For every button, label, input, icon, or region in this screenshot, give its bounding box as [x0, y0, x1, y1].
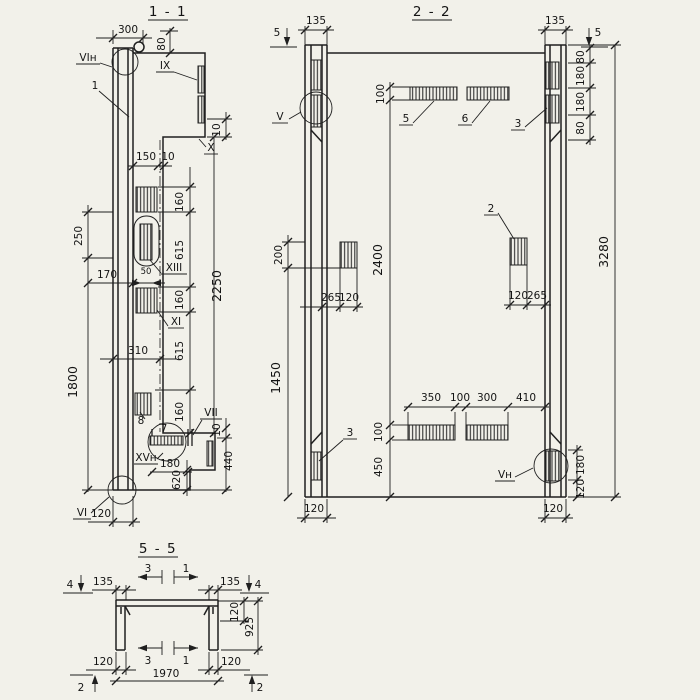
section-2-2-title: 2 - 2: [413, 4, 451, 20]
dim-135-right: 135: [545, 15, 565, 27]
label-part-5: 5: [403, 113, 410, 125]
dim-250: 250: [73, 226, 85, 246]
dim-100-bot: 100: [373, 422, 385, 442]
dim-160-3: 160: [174, 402, 186, 422]
dim-450: 450: [373, 457, 385, 477]
cut-3-bottom: 3: [145, 655, 152, 667]
dim-80: 80: [156, 37, 168, 50]
dim-10-bot: 10: [211, 423, 223, 436]
dim-170: 170: [97, 269, 117, 281]
section-5-5-title: 5 - 5: [139, 541, 177, 557]
dim-120-right: 120: [508, 290, 528, 302]
dim-135-right: 135: [220, 576, 240, 588]
dim-2250: 2250: [209, 270, 224, 302]
label-part-2: 2: [488, 203, 495, 215]
label-part-8: 8: [138, 415, 145, 427]
dim-10-top: 10: [211, 123, 223, 136]
dim-80-2: 80: [575, 121, 587, 134]
section-5-5-outline: [116, 600, 218, 650]
cut-2-left: 2: [78, 682, 85, 694]
dim-310: 310: [128, 345, 148, 357]
dim-80-1: 80: [575, 50, 587, 63]
dim-180-1: 180: [575, 66, 587, 86]
label-vi-n: VIн: [79, 52, 96, 64]
dim-180-2: 180: [575, 92, 587, 112]
label-ix: IX: [160, 60, 170, 72]
section-5-5: 5 - 5: [63, 541, 269, 694]
dim-100-top: 100: [375, 84, 387, 104]
cut-3-top: 3: [145, 563, 152, 575]
section-2-2-embeds: [311, 60, 559, 481]
section-1-1: 1 - 1: [65, 4, 235, 527]
dim-3280: 3280: [596, 236, 611, 268]
dim-135-left: 135: [306, 15, 326, 27]
dim-200: 200: [273, 245, 285, 265]
dim-300: 300: [118, 24, 138, 36]
dim-160-1: 160: [174, 192, 186, 212]
cut-1-top: 1: [183, 563, 190, 575]
dim-120-bottom-left: 120: [93, 656, 113, 668]
label-vii: VII: [204, 407, 217, 419]
dim-620: 620: [171, 470, 183, 490]
dim-925: 925: [244, 617, 256, 637]
label-part-1: 1: [92, 80, 99, 92]
label-part-3-top: 3: [515, 118, 522, 130]
dim-150: 150: [136, 151, 156, 163]
dim-135-left: 135: [93, 576, 113, 588]
dim-120-bottom-right: 120: [575, 479, 587, 499]
cut-5-left: 5: [274, 27, 281, 39]
dim-120-bottom-left-col: 120: [304, 503, 324, 515]
cut-5-right: 5: [595, 27, 602, 39]
label-xiii: XIII: [166, 262, 182, 274]
dim-180: 180: [160, 458, 180, 470]
dim-440: 440: [223, 451, 235, 471]
dim-10-web: 10: [161, 151, 174, 163]
dim-120: 120: [91, 508, 111, 520]
dim-1970: 1970: [153, 668, 180, 680]
dim-615-2: 615: [174, 341, 186, 361]
drawing-sheet: 1 - 1: [0, 0, 700, 700]
dim-50: 50: [141, 267, 152, 277]
dim-615-1: 615: [174, 240, 186, 260]
label-part-3-bottom: 3: [347, 427, 354, 439]
label-part-6: 6: [462, 113, 469, 125]
dim-1450: 1450: [268, 362, 283, 394]
dim-265-right: 265: [527, 290, 547, 302]
section-2-2-leaders: [272, 101, 547, 481]
dim-1800: 1800: [65, 366, 80, 398]
label-x: X: [207, 142, 214, 154]
drawing-canvas: 1 - 1: [0, 0, 700, 700]
dim-410: 410: [516, 392, 536, 404]
label-xi: XI: [171, 316, 181, 328]
label-part-7: 7: [161, 423, 168, 435]
dim-160-2: 160: [174, 290, 186, 310]
dim-300: 300: [477, 392, 497, 404]
section-2-2: 2 - 2: [268, 4, 621, 523]
label-vi: VI: [77, 507, 87, 519]
dim-180-bottom-right: 180: [575, 455, 587, 475]
label-xv-n: XVн: [135, 452, 156, 464]
dim-100-mid: 100: [450, 392, 470, 404]
dim-120-bottom-right-col: 120: [543, 503, 563, 515]
label-v-n: Vн: [498, 469, 512, 481]
cut-2-right: 2: [257, 682, 264, 694]
cut-4-right: 4: [255, 579, 262, 591]
dim-120-bottom-right: 120: [221, 656, 241, 668]
cut-4-left: 4: [67, 579, 74, 591]
dim-120-left: 120: [339, 292, 359, 304]
section-1-1-title: 1 - 1: [149, 4, 187, 20]
dim-350: 350: [421, 392, 441, 404]
dim-120-top-right: 120: [229, 602, 241, 622]
cut-1-bottom: 1: [183, 655, 190, 667]
dim-2400: 2400: [370, 244, 385, 276]
label-v: V: [276, 111, 284, 123]
